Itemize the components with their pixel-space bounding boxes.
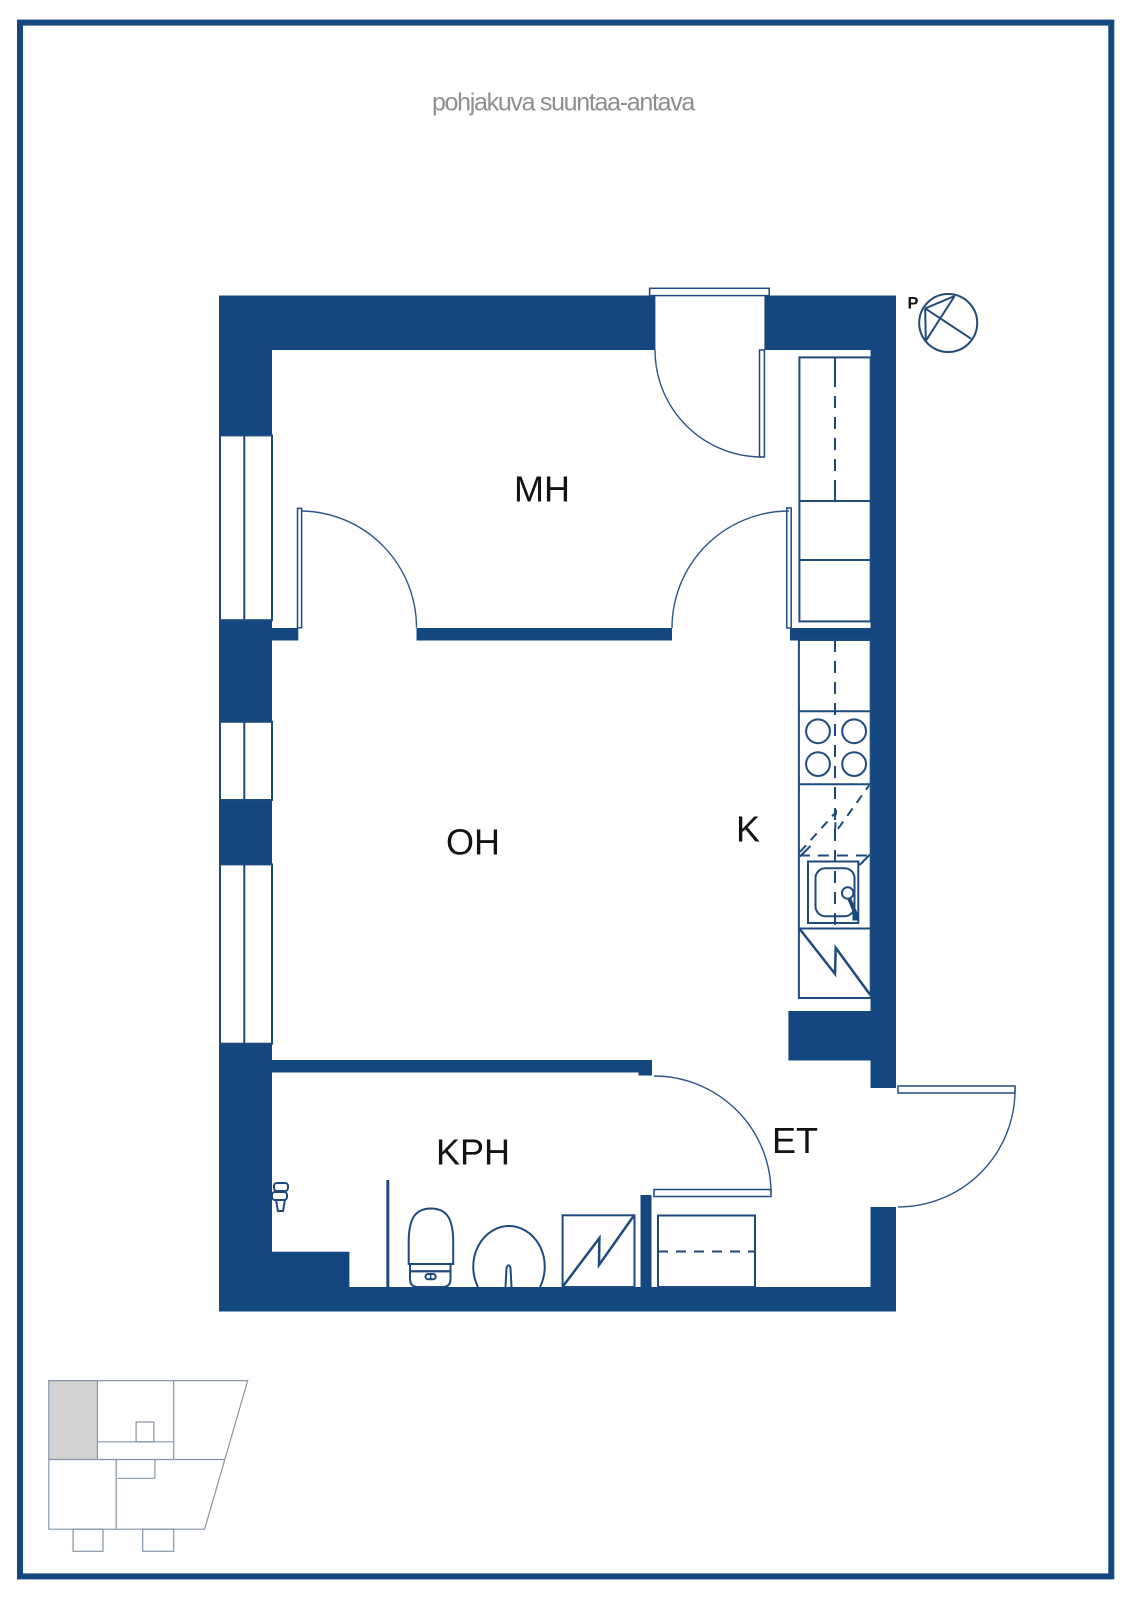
svg-text:P: P [908, 295, 919, 313]
svg-text:MH: MH [514, 468, 570, 509]
svg-text:ET: ET [772, 1120, 818, 1161]
svg-text:pohjakuva suuntaa-antava: pohjakuva suuntaa-antava [432, 89, 695, 117]
svg-text:KPH: KPH [436, 1131, 510, 1172]
svg-text:OH: OH [446, 821, 500, 862]
svg-text:K: K [736, 809, 760, 850]
